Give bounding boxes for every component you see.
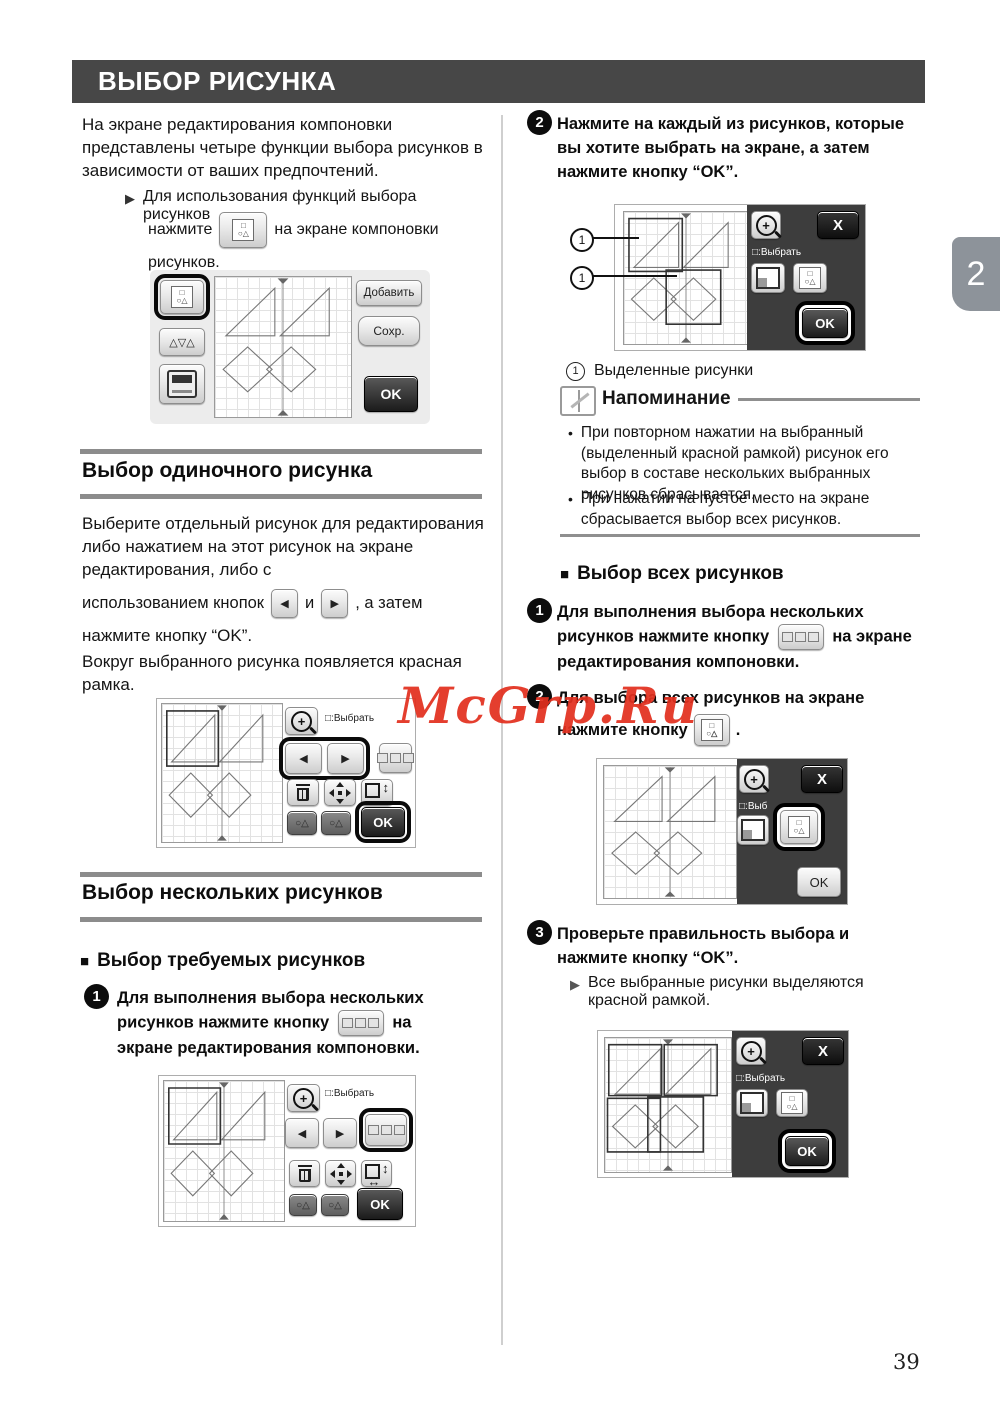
previous-button: ◀ <box>285 743 322 774</box>
figure-edit-screen-arrows: + □:Выбрать ◀ ▶ ↕↔ ○△ ○△ <box>156 698 416 848</box>
next-button: ▶ <box>323 1118 357 1148</box>
zoom-icon: + <box>293 1088 314 1109</box>
close-button: X <box>801 765 843 793</box>
frame-icon <box>741 819 765 841</box>
text: нажмите <box>148 221 212 239</box>
outline-icon: ○△ <box>329 818 343 829</box>
pattern-select-button: □ ○△ <box>219 212 267 248</box>
text: на экране компоновки <box>274 221 438 239</box>
callout-1: 1 <box>570 228 594 252</box>
select-all-button: □ ○△ <box>793 263 827 293</box>
zoom-button: + <box>285 707 318 735</box>
pattern-select-icon: □ ○△ <box>171 286 193 308</box>
ok-button: OK <box>785 1136 829 1166</box>
highlight-ring: OK <box>778 1129 836 1173</box>
trash-icon <box>295 784 311 801</box>
move-icon <box>330 1163 352 1185</box>
select-label: □:Выбрать <box>325 1088 374 1099</box>
zoom-icon: + <box>741 1041 762 1062</box>
bullet-arrow-icon: ▶ <box>570 977 580 993</box>
dark-panel: + X □:Выбрать □ ○△ OK <box>747 205 865 350</box>
figure-all-selected-screen: + X □:Выбрать □ ○△ OK <box>597 1030 849 1178</box>
move-icon <box>329 782 351 804</box>
pattern-select-icon: □ ○△ <box>799 267 821 289</box>
page-number: 39 <box>893 1350 920 1374</box>
select-label: □:Выб <box>739 801 767 812</box>
caption-number: 1 <box>566 362 585 381</box>
left-arrow-icon: ◀ <box>299 752 307 765</box>
zoom-icon: + <box>744 769 765 790</box>
callout-1: 1 <box>570 266 594 290</box>
bullet-arrow-icon: ▶ <box>125 191 135 207</box>
highlight-ring: OK <box>795 301 855 345</box>
multi-select-button <box>379 743 412 773</box>
reference-lines-button: △▽△ <box>159 328 205 356</box>
dark-panel: + X □:Выб □ ○△ OK <box>737 759 847 904</box>
intro-paragraph: На экране редактирования компоновки пред… <box>82 113 486 182</box>
step3-result-bullet: ▶ Все выбранные рисунки выделяются красн… <box>570 974 914 1010</box>
right-arrow-icon: ▶ <box>336 1127 344 1140</box>
step-number: 2 <box>527 110 552 135</box>
canvas-shapes <box>624 212 748 344</box>
select-label: □:Выбрать <box>752 247 801 258</box>
canvas-shapes <box>162 704 282 842</box>
section-rule <box>80 917 482 922</box>
next-button: ▶ <box>327 743 364 774</box>
edit-canvas <box>603 765 737 899</box>
edit-canvas <box>604 1037 732 1173</box>
note-title: Напоминание <box>602 388 731 410</box>
callout-line <box>591 237 639 239</box>
ok-button: OK <box>364 376 418 412</box>
close-icon: X <box>818 1043 828 1060</box>
step2-text: Нажмите на каждый из рисунков, которые в… <box>557 112 925 184</box>
pattern-select-button: □ ○△ <box>160 280 204 314</box>
zoom-button: + <box>287 1084 320 1112</box>
select-all-step1-text: Для выполнения выбора нескольких рисунко… <box>557 600 921 674</box>
note-title-rule <box>738 398 920 401</box>
step-number: 1 <box>84 984 109 1009</box>
ok-button: OK <box>361 807 405 837</box>
weld-icon: ○△ <box>296 1200 310 1211</box>
edit-canvas <box>163 1080 285 1222</box>
memo-icon <box>560 386 596 416</box>
subsection-required-patterns: ■ Выбор требуемых рисунков <box>80 950 365 972</box>
select-all-button: □ ○△ <box>694 714 730 746</box>
frame-select-button <box>736 1089 768 1117</box>
right-arrow-icon: ▶ <box>331 597 339 610</box>
page-title: ВЫБОР РИСУНКА <box>98 66 336 97</box>
dark-panel: + X □:Выбрать □ ○△ OK <box>732 1031 848 1177</box>
close-button: X <box>817 211 859 239</box>
select-label: □:Выбрать <box>325 713 374 724</box>
resize-icon: ↕↔ <box>365 783 389 803</box>
canvas-shapes <box>605 1038 731 1172</box>
figure-select-all-screen: + X □:Выб □ ○△ OK <box>596 758 848 905</box>
highlight-ring <box>359 1108 413 1152</box>
triangles-icon: △▽△ <box>169 336 194 349</box>
pattern-select-icon: □ ○△ <box>232 219 254 241</box>
resize-icon: ↕↔ <box>365 1164 389 1184</box>
highlight-ring: ◀ ▶ <box>279 737 370 780</box>
step3-text: Проверьте правильность выбора и нажмите … <box>557 922 921 970</box>
single-line-ok: нажмите кнопку “OK”. <box>82 624 252 647</box>
close-button: X <box>802 1037 844 1065</box>
weld-button: ○△ <box>287 811 317 835</box>
canvas-shapes <box>604 766 736 898</box>
multi-select-icon <box>377 753 414 763</box>
resize-button: ↕↔ <box>361 1160 392 1187</box>
highlight-ring: □ ○△ <box>154 274 210 320</box>
chapter-tab: 2 <box>952 237 1000 311</box>
left-arrow-icon: ◀ <box>280 597 288 610</box>
delete-button <box>289 1160 320 1187</box>
callout-line <box>591 275 677 277</box>
add-button: Добавить <box>356 280 422 306</box>
page-header: ВЫБОР РИСУНКА <box>72 60 925 103</box>
highlight-ring: OK <box>355 801 411 843</box>
left-arrow-icon: ◀ <box>298 1127 306 1140</box>
weld-button: ○△ <box>289 1194 317 1216</box>
pattern-select-icon: □ ○△ <box>781 1092 803 1114</box>
move-button <box>324 779 356 806</box>
move-button <box>325 1160 356 1187</box>
section-title-multiple: Выбор нескольких рисунков <box>82 881 383 905</box>
step1-text: Для выполнения выбора нескольких рисунко… <box>117 986 469 1060</box>
ok-button: OK <box>797 867 841 897</box>
highlight-ring: □ ○△ <box>773 803 825 851</box>
frame-icon <box>740 1092 764 1114</box>
mat-icon <box>167 370 197 398</box>
intro-bullet-line2: нажмите □ ○△ на экране компоновки <box>148 210 439 250</box>
multi-select-icon <box>368 1125 405 1135</box>
zoom-icon: + <box>291 711 312 732</box>
selection-screen: + X □:Выбрать □ ○△ OK <box>614 204 866 351</box>
figure-layout-screen: □ ○△ △▽△ Добавить Сохр. <box>150 270 430 424</box>
section-rule <box>80 872 482 877</box>
single-paragraph: Выберите отдельный рисунок для редактиро… <box>82 512 486 581</box>
frame-icon <box>756 267 780 289</box>
multi-select-icon <box>782 632 819 642</box>
layout-canvas <box>214 276 352 418</box>
note-bottom-rule <box>560 534 920 537</box>
outline-icon: ○△ <box>328 1200 342 1211</box>
previous-button: ◀ <box>285 1118 319 1148</box>
select-all-button: □ ○△ <box>776 1089 808 1117</box>
manual-page: ВЫБОР РИСУНКА 2 На экране редактирования… <box>0 0 1000 1413</box>
edit-canvas <box>161 703 283 843</box>
outline-button: ○△ <box>321 811 351 835</box>
square-marker-icon: ■ <box>80 953 89 970</box>
section-rule <box>80 494 482 499</box>
canvas-shapes <box>215 277 351 417</box>
frame-select-button <box>751 263 785 293</box>
multi-select-button <box>338 1010 384 1036</box>
previous-button: ◀ <box>271 589 298 618</box>
selection-box <box>609 1045 662 1096</box>
zoom-button: + <box>739 765 769 793</box>
chapter-number: 2 <box>967 255 986 294</box>
save-button: Сохр. <box>358 316 420 346</box>
step-number: 1 <box>527 598 552 623</box>
weld-icon: ○△ <box>295 818 309 829</box>
zoom-button: + <box>736 1037 766 1065</box>
subsection-select-all: ■ Выбор всех рисунков <box>560 563 784 585</box>
close-icon: X <box>833 217 843 234</box>
edit-canvas <box>623 211 749 345</box>
multi-select-icon <box>342 1018 379 1028</box>
ok-button: OK <box>802 308 848 338</box>
section-rule <box>80 449 482 454</box>
intro-text: На экране редактирования компоновки пред… <box>82 115 483 180</box>
canvas-shapes <box>164 1081 284 1221</box>
next-button: ▶ <box>321 589 348 618</box>
section-title-single: Выбор одиночного рисунка <box>82 459 372 483</box>
frame-select-button <box>737 815 769 845</box>
multi-select-button <box>365 1114 407 1146</box>
trash-icon <box>297 1165 313 1182</box>
delete-button <box>287 779 319 806</box>
figure-edit-screen-multiselect: + □:Выбрать ◀ ▶ ↕↔ ○△ ○△ OK <box>158 1075 416 1227</box>
square-marker-icon: ■ <box>560 566 569 583</box>
select-all-button: □ ○△ <box>780 810 818 844</box>
single-buttons-line: использованием кнопок ◀ и ▶ , а затем <box>82 586 422 620</box>
outline-button: ○△ <box>321 1194 349 1216</box>
right-arrow-icon: ▶ <box>341 752 349 765</box>
step-number: 3 <box>527 920 552 945</box>
figure-selected-patterns: 1 1 + X <box>570 204 866 354</box>
pattern-select-icon: □ ○△ <box>788 816 810 838</box>
select-label: □:Выбрать <box>736 1073 785 1084</box>
mat-button <box>159 364 205 404</box>
zoom-icon: + <box>756 215 777 236</box>
note-bullet: • При нажатии на пустое место на экране … <box>568 489 920 530</box>
watermark: McGrp.Ru <box>398 676 699 735</box>
pattern-select-icon: □ ○△ <box>701 719 723 741</box>
ok-button: OK <box>357 1188 403 1220</box>
close-icon: X <box>817 771 827 788</box>
multi-select-button <box>778 624 824 650</box>
zoom-button: + <box>751 211 781 239</box>
figure-caption: 1 Выделенные рисунки <box>566 360 753 382</box>
